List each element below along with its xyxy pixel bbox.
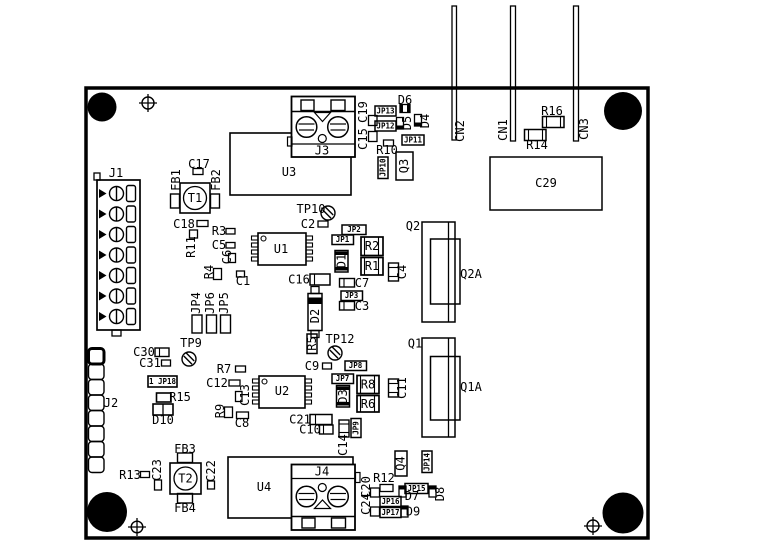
label-c4: C4 xyxy=(395,265,409,279)
label-j1: J1 xyxy=(109,166,123,180)
label-cn2: CN2 xyxy=(453,120,467,142)
j2-pad-2 xyxy=(89,364,105,380)
c31-body xyxy=(162,360,171,366)
r13-body xyxy=(141,472,150,478)
label-fb1: FB1 xyxy=(169,169,183,191)
label-jp7: JP7 xyxy=(336,374,350,383)
fb2-body xyxy=(211,194,220,208)
label-r16: R16 xyxy=(541,104,563,118)
label-c10: C10 xyxy=(299,423,321,437)
label-r9: R9 xyxy=(213,404,227,418)
u1-pin-l3 xyxy=(252,250,259,254)
label-d1: D1 xyxy=(335,254,349,268)
label-r14: R14 xyxy=(526,138,548,152)
label-1-jp18: 1 JP18 xyxy=(149,377,177,386)
jp6-body xyxy=(207,315,217,333)
label-jp8: JP8 xyxy=(349,361,363,370)
j2-pad-6 xyxy=(89,426,105,442)
label-jp14: JP14 xyxy=(423,452,432,471)
label-r15: R15 xyxy=(169,390,191,404)
label-c15: C15 xyxy=(356,128,370,150)
j1-pin6-triangle xyxy=(99,292,107,301)
d2-band xyxy=(308,298,322,305)
label-q1: Q1 xyxy=(408,337,422,351)
j1-pin1-pad xyxy=(127,186,136,202)
label-c9: C9 xyxy=(305,359,319,373)
label-c8: C8 xyxy=(235,416,249,430)
c3-body xyxy=(340,302,355,311)
j1-pin5-triangle xyxy=(99,271,107,280)
label-jp5: JP5 xyxy=(217,292,231,314)
d2-pad-top xyxy=(311,287,319,294)
j1-pin2-pad xyxy=(127,206,136,222)
j1-pin1-triangle xyxy=(99,189,107,198)
label-r3: R3 xyxy=(212,224,226,238)
q1-heatsink xyxy=(422,338,455,437)
j1-pin5-pad xyxy=(127,268,136,284)
j1-pin3-pad xyxy=(127,227,136,243)
r7-body xyxy=(236,366,246,372)
cn1-pin xyxy=(511,6,516,141)
j1-pin2-triangle xyxy=(99,210,107,219)
j2-pad-5 xyxy=(89,411,105,427)
label-fb2: FB2 xyxy=(209,169,223,191)
label-fb3: FB3 xyxy=(174,442,196,456)
u2-pin-r1 xyxy=(305,379,312,383)
label-jp13: JP13 xyxy=(376,107,395,116)
c2-body xyxy=(318,221,328,227)
u2-pin-l2 xyxy=(253,386,260,390)
j1-top-tab xyxy=(94,173,100,180)
j2-pad-8 xyxy=(89,457,105,473)
label-c24: C24 xyxy=(359,493,373,515)
pcb-assembly-diagram: J1C17FB1FB2T1C18R11R3C5C6R4C1U1C2TP10JP4… xyxy=(0,0,768,556)
label-q2: Q2 xyxy=(406,219,420,233)
j1-pin4-triangle xyxy=(99,251,107,260)
u1-pin-l2 xyxy=(252,243,259,247)
label-c2: C2 xyxy=(301,217,315,231)
label-r8: R8 xyxy=(361,378,375,392)
j2-pad-4 xyxy=(89,395,105,411)
u1-pin-r1 xyxy=(306,236,313,240)
label-tp10: TP10 xyxy=(297,202,326,216)
label-c3: C3 xyxy=(355,299,369,313)
label-tp12: TP12 xyxy=(326,332,355,346)
u1-pin-r4 xyxy=(306,257,313,261)
fb1-body xyxy=(171,194,180,208)
label-d8: D8 xyxy=(433,487,447,501)
label-j4: J4 xyxy=(315,465,329,479)
u1-pin1-dot xyxy=(261,236,266,241)
label-c31: C31 xyxy=(139,356,161,370)
label-r5: R5 xyxy=(305,336,319,350)
label-r11: R11 xyxy=(184,236,198,258)
label-r13: R13 xyxy=(119,468,141,482)
c18-body xyxy=(197,221,208,227)
label-d3: D3 xyxy=(336,389,350,403)
label-t2: T2 xyxy=(178,472,192,486)
u2-pin-r3 xyxy=(305,393,312,397)
c7-body xyxy=(340,279,355,288)
label-d10: D10 xyxy=(152,413,174,427)
label-jp4: JP4 xyxy=(189,292,203,314)
j1-pin7-triangle xyxy=(99,312,107,321)
mounting-hole-top-left xyxy=(88,93,117,122)
label-r12: R12 xyxy=(373,471,395,485)
pcb-assembly-diagram-page: J1C17FB1FB2T1C18R11R3C5C6R4C1U1C2TP10JP4… xyxy=(0,0,768,556)
c10-body xyxy=(320,425,334,434)
label-cn1: CN1 xyxy=(496,119,510,141)
j1-bottom-tab xyxy=(112,330,121,336)
label-c1: C1 xyxy=(236,274,250,288)
label-j3: J3 xyxy=(315,144,329,158)
label-c7: C7 xyxy=(355,276,369,290)
u1-pin-r3 xyxy=(306,250,313,254)
cn2-pin xyxy=(452,6,457,140)
label-jp11: JP11 xyxy=(404,136,423,145)
j1-pin4-pad xyxy=(127,247,136,263)
tp9-pad xyxy=(182,352,196,366)
label-jp9: JP9 xyxy=(352,421,361,435)
label-c19: C19 xyxy=(356,101,370,123)
label-c22: C22 xyxy=(204,460,218,482)
label-c23: C23 xyxy=(150,459,164,481)
mounting-hole-bottom-left xyxy=(87,492,127,532)
u2-pin-r4 xyxy=(305,400,312,404)
label-r4: R4 xyxy=(202,265,216,279)
label-c13: C13 xyxy=(238,384,252,406)
label-fb4: FB4 xyxy=(174,501,196,515)
j2-pad-1 xyxy=(89,349,105,365)
label-jp10: JP10 xyxy=(379,158,388,177)
label-r2: R2 xyxy=(365,239,379,253)
jp4-body xyxy=(192,315,202,333)
label-jp2: JP2 xyxy=(347,225,361,234)
label-q2a: Q2A xyxy=(460,267,482,281)
u1-pin-l4 xyxy=(252,257,259,261)
label-c6: C6 xyxy=(220,250,234,264)
label-cn3: CN3 xyxy=(577,118,591,140)
label-tp9: TP9 xyxy=(180,336,202,350)
label-jp1: JP1 xyxy=(336,235,350,244)
label-q4: Q4 xyxy=(394,456,408,470)
j1-pin6-pad xyxy=(127,288,136,304)
label-u1: U1 xyxy=(274,242,288,256)
label-c12: C12 xyxy=(206,376,228,390)
j2-pad-3 xyxy=(89,380,105,396)
r12-body xyxy=(380,485,393,492)
label-d9: D9 xyxy=(406,505,420,519)
label-d5: D5 xyxy=(400,116,414,130)
label-jp16: JP16 xyxy=(381,497,400,506)
r3-body xyxy=(226,229,235,235)
mounting-hole-bottom-right xyxy=(603,493,644,534)
j1-pin3-triangle xyxy=(99,230,107,239)
label-j2: J2 xyxy=(104,396,118,410)
c16-body xyxy=(310,274,330,285)
label-c16: C16 xyxy=(288,273,310,287)
label-u2: U2 xyxy=(275,384,289,398)
u2-pin-r2 xyxy=(305,386,312,390)
label-d6: D6 xyxy=(398,93,412,107)
label-u3: U3 xyxy=(282,165,296,179)
tp12-pad xyxy=(328,346,342,360)
label-jp17: JP17 xyxy=(381,508,399,517)
label-d4: D4 xyxy=(418,114,432,128)
label-c14: C14 xyxy=(336,434,350,456)
label-r7: R7 xyxy=(217,362,231,376)
label-c17: C17 xyxy=(188,157,210,171)
c9-body xyxy=(323,363,332,369)
u2-pin-l4 xyxy=(253,400,260,404)
label-r6: R6 xyxy=(361,397,375,411)
q2-heatsink xyxy=(422,222,455,322)
label-u4: U4 xyxy=(257,480,271,494)
label-c29: C29 xyxy=(535,176,557,190)
u1-pin-r2 xyxy=(306,243,313,247)
label-q1a: Q1A xyxy=(460,380,482,394)
u2-pin1-dot xyxy=(262,379,267,384)
u2-pin-l3 xyxy=(253,393,260,397)
label-jp12: JP12 xyxy=(376,122,394,131)
j2-pad-7 xyxy=(89,442,105,458)
u2-pin-l1 xyxy=(253,379,260,383)
mounting-hole-top-right xyxy=(604,92,642,130)
c5-body xyxy=(226,243,235,249)
jp5-body xyxy=(221,315,231,333)
label-q3: Q3 xyxy=(397,159,411,173)
label-d7: D7 xyxy=(405,489,419,503)
j1-pin7-pad xyxy=(127,309,136,325)
label-d2: D2 xyxy=(308,309,322,323)
u1-pin-l1 xyxy=(252,236,259,240)
label-t1: T1 xyxy=(188,191,202,205)
label-r1: R1 xyxy=(365,259,379,273)
label-jp6: JP6 xyxy=(203,292,217,314)
label-c18: C18 xyxy=(173,217,195,231)
label-c11: C11 xyxy=(395,377,409,399)
label-r10: R10 xyxy=(376,143,398,157)
